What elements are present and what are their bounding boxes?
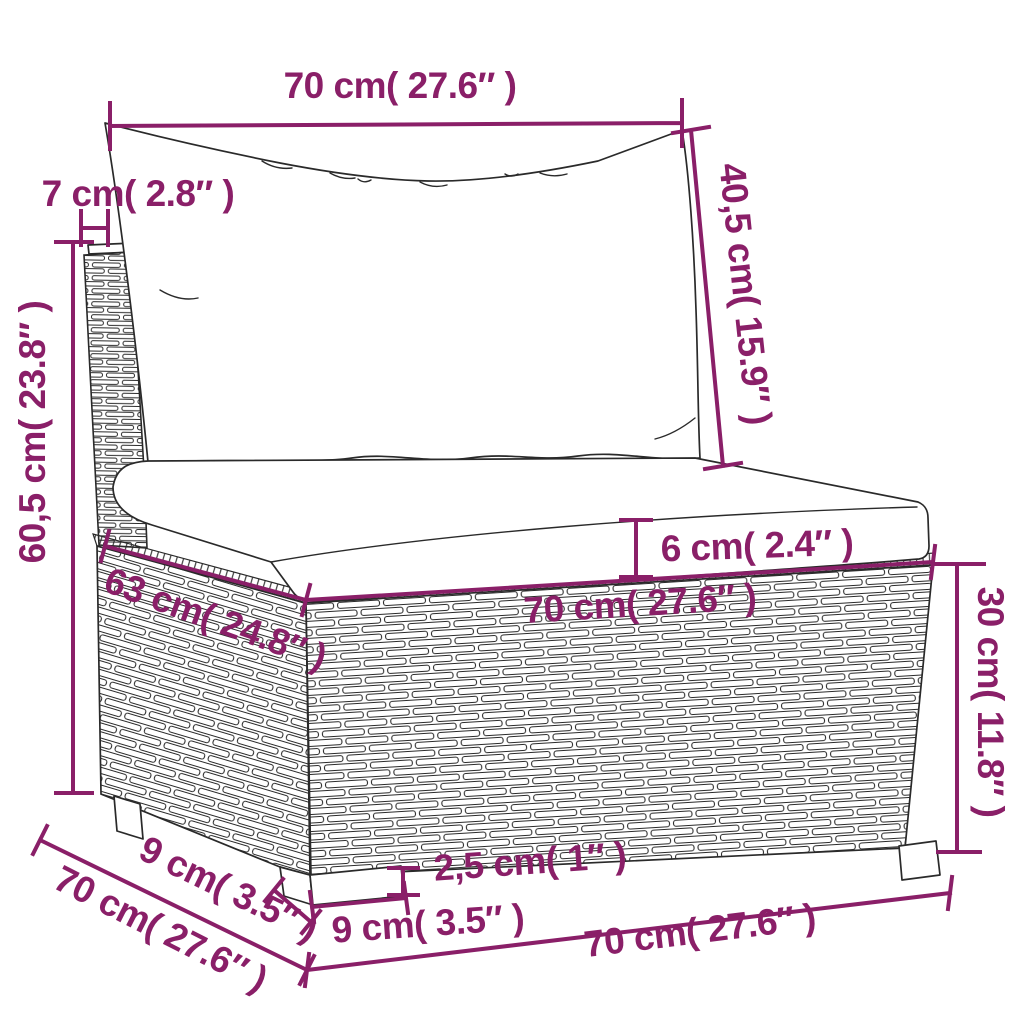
sofa-dimension-diagram: 70 cm( 27.6″ ) 7 cm( 2.8″ ) 60,5 cm( 23.…: [0, 0, 1024, 1024]
dim-label-leg-front-width: 9 cm( 3.5″ ): [330, 896, 525, 950]
dim-label-back-cushion-width: 70 cm( 27.6″ ): [284, 65, 517, 106]
dim-label-total-height: 60,5 cm( 23.8″ ): [12, 301, 53, 564]
dim-label-base-front-width: 70 cm( 27.6″ ): [582, 896, 818, 965]
dim-label-back-cushion-height: 40,5 cm( 15.9″ ): [711, 161, 779, 427]
dimension-back-cushion-width: 70 cm( 27.6″ ): [110, 65, 682, 149]
diagram-canvas: 70 cm( 27.6″ ) 7 cm( 2.8″ ) 60,5 cm( 23.…: [0, 0, 1024, 1024]
dimension-base-height: 30 cm( 11.8″ ): [934, 564, 1011, 852]
dim-label-base-height: 30 cm( 11.8″ ): [970, 587, 1011, 818]
front-right-leg: [899, 841, 940, 880]
sofa-drawing: [84, 123, 940, 905]
dimension-total-height: 60,5 cm( 23.8″ ): [12, 242, 92, 793]
dim-label-back-panel-thickness: 7 cm( 2.8″ ): [42, 173, 235, 214]
dim-label-seat-cushion-thickness: 6 cm( 2.4″ ): [660, 522, 854, 570]
